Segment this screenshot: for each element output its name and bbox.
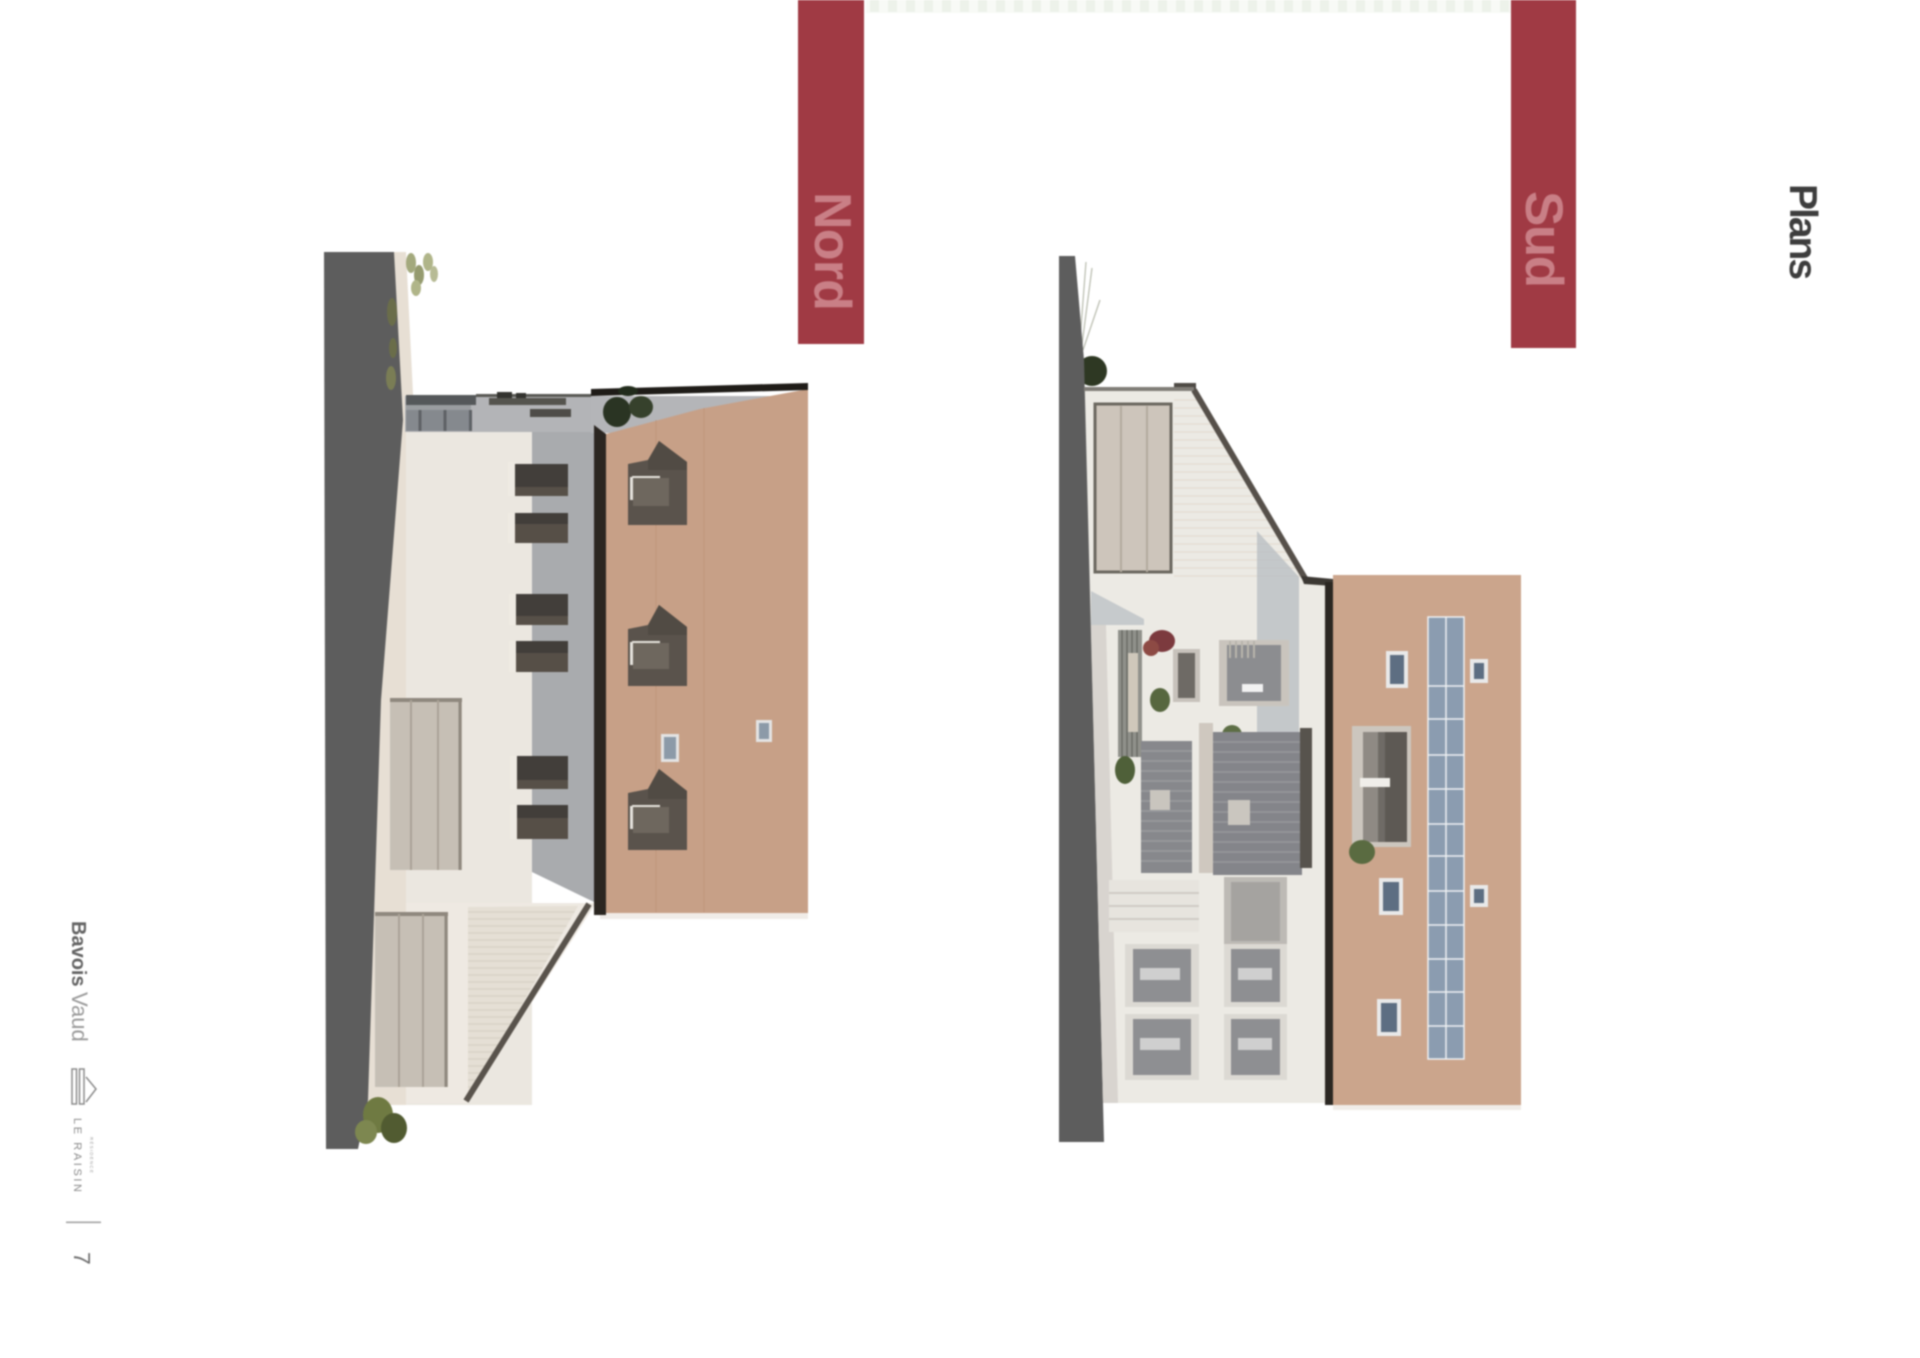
svg-text:Bavois: Bavois (67, 921, 89, 987)
svg-text:Vaud: Vaud (67, 992, 92, 1042)
svg-text:7: 7 (69, 1252, 95, 1265)
svg-text:RÉSIDENCE: RÉSIDENCE (89, 1137, 95, 1174)
svg-text:Plans: Plans (1781, 184, 1824, 279)
svg-text:Sud: Sud (1514, 191, 1573, 287)
svg-text:Nord: Nord (803, 192, 861, 310)
svg-text:LE RAISIN: LE RAISIN (71, 1118, 83, 1195)
